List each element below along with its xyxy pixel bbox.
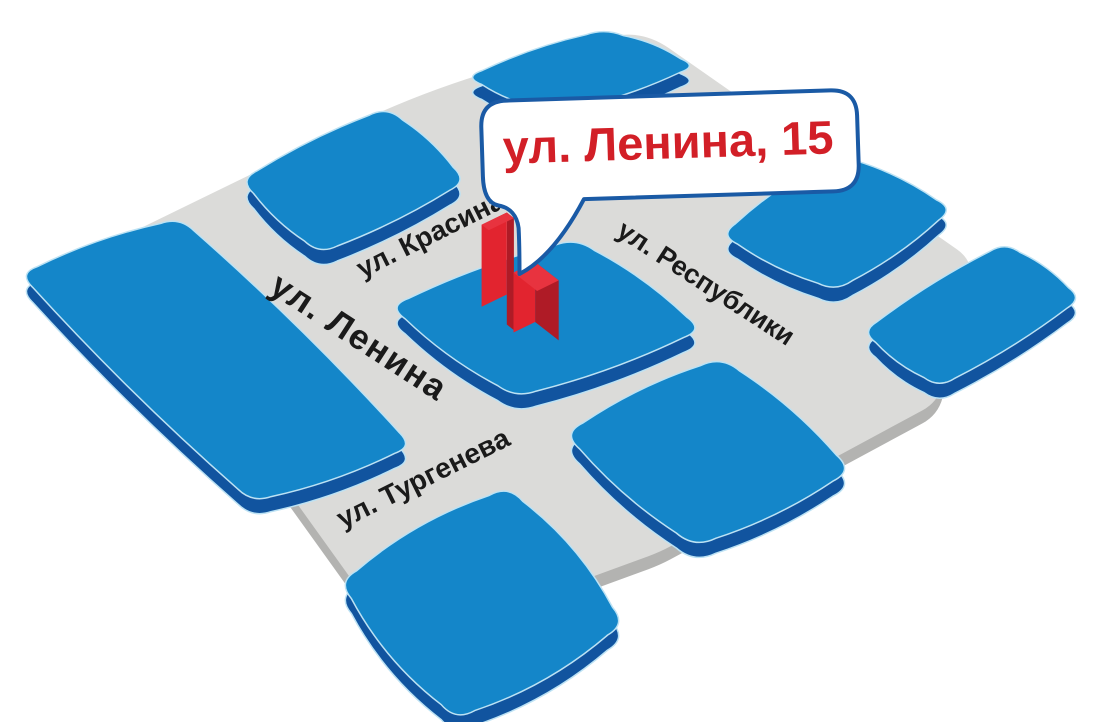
svg-text:ул. Ленина, 15: ул. Ленина, 15 xyxy=(502,110,834,173)
